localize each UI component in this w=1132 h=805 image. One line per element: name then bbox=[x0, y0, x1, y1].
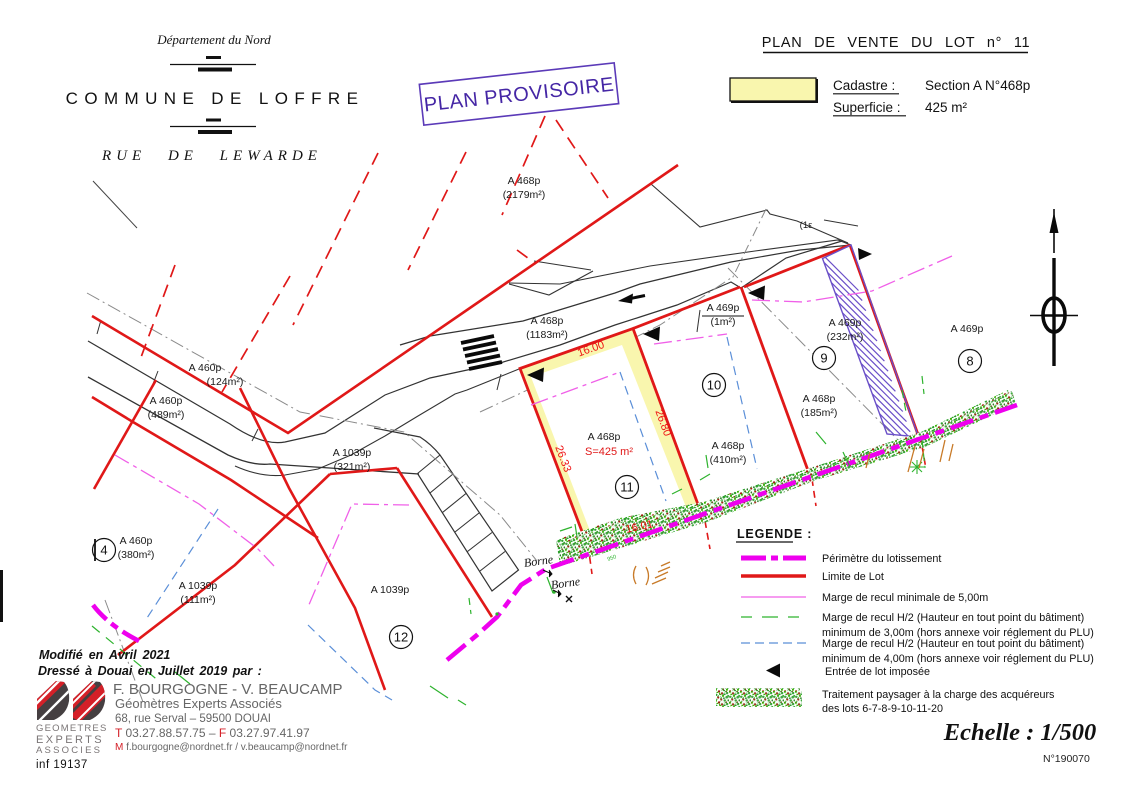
svg-text:Section A N°468p: Section A N°468p bbox=[925, 78, 1030, 93]
svg-text:(2179m²): (2179m²) bbox=[503, 189, 546, 201]
svg-text:A 1039p: A 1039p bbox=[333, 447, 372, 459]
svg-text:A 1039p: A 1039p bbox=[179, 580, 218, 592]
svg-text:A 460p: A 460p bbox=[150, 395, 183, 407]
svg-text:(185m²): (185m²) bbox=[801, 407, 838, 419]
svg-text:Département du Nord: Département du Nord bbox=[156, 32, 271, 47]
svg-text:(111m²): (111m²) bbox=[180, 594, 215, 606]
svg-text:Superficie :: Superficie : bbox=[833, 100, 901, 115]
svg-text:N°190070: N°190070 bbox=[1043, 753, 1090, 765]
svg-text:(1ε: (1ε bbox=[800, 220, 813, 231]
svg-text:S=425 m²: S=425 m² bbox=[585, 446, 633, 458]
svg-text:A 468p: A 468p bbox=[803, 393, 836, 405]
svg-text:Echelle : 1/500: Echelle : 1/500 bbox=[943, 719, 1096, 746]
svg-text:Traitement paysager à la charg: Traitement paysager à la charge des acqu… bbox=[822, 689, 1055, 701]
svg-text:425 m²: 425 m² bbox=[925, 100, 968, 115]
svg-text:A 469p: A 469p bbox=[707, 302, 740, 314]
svg-text:10: 10 bbox=[707, 378, 721, 393]
svg-text:A 468p: A 468p bbox=[508, 175, 541, 187]
svg-text:PLAN DE VENTE DU LOT n° 11: PLAN DE VENTE DU LOT n° 11 bbox=[762, 35, 1031, 51]
svg-text:Cadastre :: Cadastre : bbox=[833, 78, 895, 93]
svg-text:(489m²): (489m²) bbox=[148, 409, 185, 421]
svg-text:12: 12 bbox=[394, 630, 408, 645]
svg-text:Marge de recul minimale de 5,0: Marge de recul minimale de 5,00m bbox=[822, 592, 988, 604]
svg-text:A 460p: A 460p bbox=[189, 362, 222, 374]
svg-text:4: 4 bbox=[100, 543, 107, 558]
svg-text:(124m²): (124m²) bbox=[207, 376, 244, 388]
svg-text:Géomètres Experts Associés: Géomètres Experts Associés bbox=[115, 696, 282, 711]
svg-text:M f.bourgogne@nordnet.fr / v.b: M f.bourgogne@nordnet.fr / v.beaucamp@no… bbox=[115, 742, 348, 753]
svg-text:A 469p: A 469p bbox=[951, 323, 984, 335]
svg-text:LEGENDE :: LEGENDE : bbox=[737, 527, 812, 541]
svg-text:T 03.27.88.57.75 – F 03.27.9: T 03.27.88.57.75 – F 03.27.97.41.97 bbox=[115, 726, 310, 740]
svg-text:des lots 6-7-8-9-10-11-20: des lots 6-7-8-9-10-11-20 bbox=[822, 703, 943, 715]
svg-text:(1183m²): (1183m²) bbox=[526, 329, 568, 341]
svg-text:ASSOCIES: ASSOCIES bbox=[36, 745, 102, 756]
svg-text:68, rue Serval – 59500 DOUAI: 68, rue Serval – 59500 DOUAI bbox=[115, 713, 271, 725]
svg-text:(410m²): (410m²) bbox=[710, 454, 747, 466]
svg-text:Marge de recul H/2 (Hauteur en: Marge de recul H/2 (Hauteur en tout poin… bbox=[822, 638, 1084, 650]
svg-text:Entrée de lot imposée: Entrée de lot imposée bbox=[825, 666, 930, 678]
svg-text:minimum de 4,00m (hors annexe: minimum de 4,00m (hors annexe voir régle… bbox=[822, 653, 1094, 665]
svg-text:(321m²): (321m²) bbox=[334, 461, 371, 473]
svg-text:(232m²): (232m²) bbox=[827, 331, 864, 343]
svg-text:Modifié en Avril 2021: Modifié en Avril 2021 bbox=[39, 648, 170, 662]
svg-text:A 1039p: A 1039p bbox=[371, 584, 410, 596]
svg-text:9: 9 bbox=[820, 351, 827, 366]
svg-text:COMMUNE DE LOFFRE: COMMUNE DE LOFFRE bbox=[66, 89, 365, 108]
svg-text:RUE DE LEWARDE: RUE DE LEWARDE bbox=[101, 148, 322, 164]
svg-text:(1m²): (1m²) bbox=[710, 316, 735, 328]
svg-text:(380m²): (380m²) bbox=[118, 549, 155, 561]
svg-text:GEOMETRES: GEOMETRES bbox=[36, 723, 108, 734]
svg-text:A 469p: A 469p bbox=[829, 317, 862, 329]
svg-text:Dressé à Douai en Juillet 2019: Dressé à Douai en Juillet 2019 par : bbox=[38, 664, 262, 678]
svg-text:A 468p: A 468p bbox=[588, 431, 621, 443]
svg-text:A 468p: A 468p bbox=[712, 440, 745, 452]
svg-text:A 460p: A 460p bbox=[120, 535, 153, 547]
svg-text:Marge de recul H/2 (Hauteur en: Marge de recul H/2 (Hauteur en tout poin… bbox=[822, 612, 1084, 624]
svg-text:11: 11 bbox=[620, 480, 634, 495]
svg-text:A 468p: A 468p bbox=[531, 315, 564, 327]
svg-text:inf 19137: inf 19137 bbox=[36, 759, 88, 771]
svg-text:Périmètre du lotissement: Périmètre du lotissement bbox=[822, 553, 941, 565]
svg-text:8: 8 bbox=[966, 354, 973, 369]
svg-text:Limite de Lot: Limite de Lot bbox=[822, 571, 884, 583]
